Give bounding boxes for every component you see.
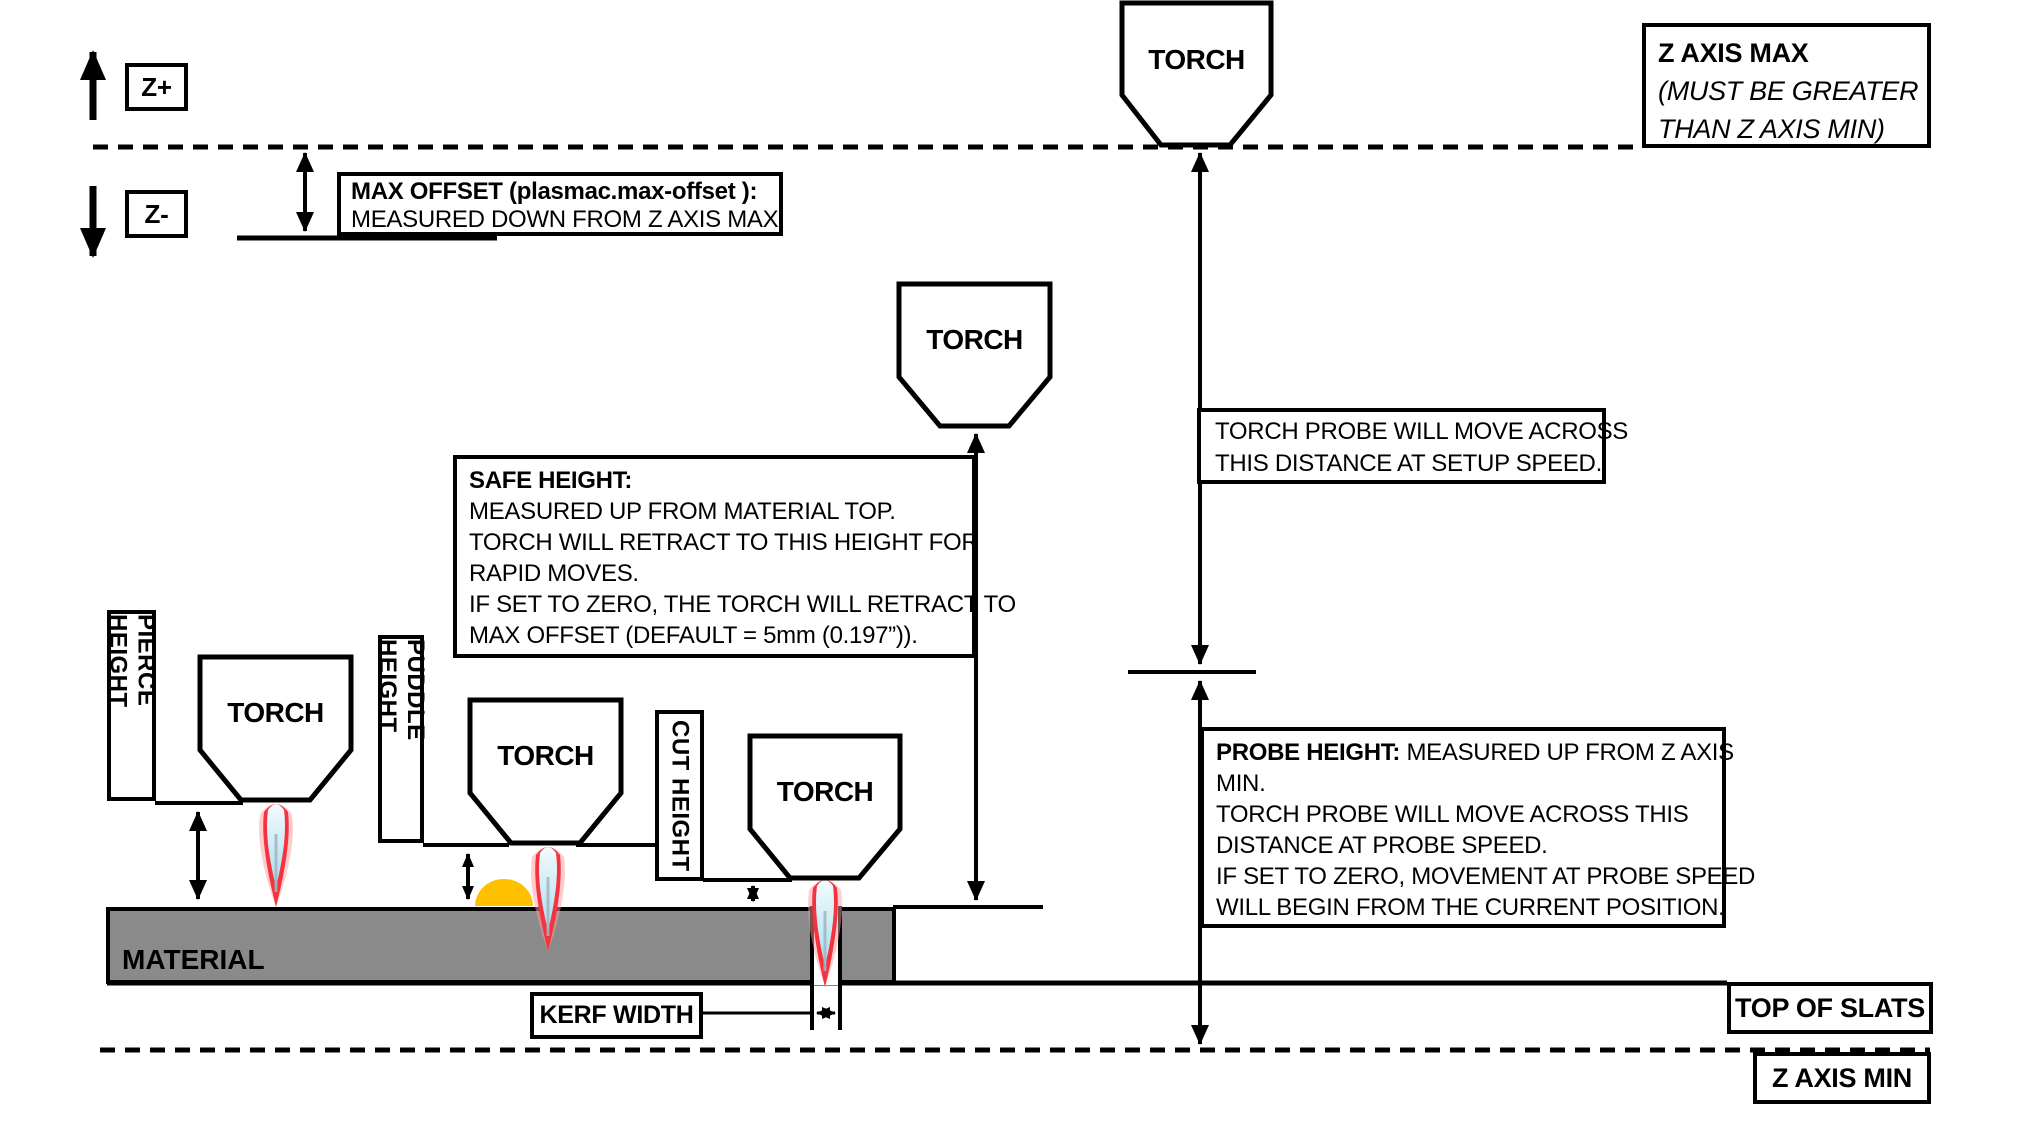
- probe-height-title: PROBE HEIGHT:: [1216, 739, 1400, 766]
- safe-height-line1: MEASURED UP FROM MATERIAL TOP.: [469, 496, 960, 527]
- safe-height-box: SAFE HEIGHT: MEASURED UP FROM MATERIAL T…: [453, 455, 976, 658]
- plasmac-height-diagram: TORCH TORCH TORCH TORCH TORCH Z+ Z- MAX …: [0, 0, 2038, 1145]
- z-axis-max-line3: THAN Z AXIS MIN): [1658, 110, 1915, 148]
- max-offset-title: MAX OFFSET (plasmac.max-offset ):: [351, 178, 769, 206]
- torch-probe-setup-line2: THIS DISTANCE AT SETUP SPEED.: [1215, 448, 1588, 480]
- safe-height-title: SAFE HEIGHT:: [469, 465, 960, 496]
- diagram-linework: [0, 0, 2038, 1145]
- material-label: MATERIAL: [122, 944, 265, 976]
- z-plus-box: Z+: [125, 63, 188, 111]
- torch-label-cut: TORCH: [750, 776, 900, 808]
- torch-label-safe: TORCH: [899, 324, 1050, 356]
- cut-height-label: CUT HEIGHT: [655, 710, 704, 881]
- probe-height-line5: WILL BEGIN FROM THE CURRENT POSITION.: [1216, 892, 1710, 923]
- torch-label-puddle: TORCH: [470, 740, 621, 772]
- safe-height-line5: MAX OFFSET (DEFAULT = 5mm (0.197”)).: [469, 620, 960, 651]
- puddle-shape: [475, 879, 533, 906]
- z-axis-max-line2: (MUST BE GREATER: [1658, 72, 1915, 110]
- torch-probe-setup-line1: TORCH PROBE WILL MOVE ACROSS: [1215, 416, 1588, 448]
- probe-height-title-line: PROBE HEIGHT: MEASURED UP FROM Z AXIS: [1216, 737, 1710, 768]
- probe-height-title-rest: MEASURED UP FROM Z AXIS: [1400, 739, 1734, 766]
- top-of-slats-box: TOP OF SLATS: [1727, 982, 1933, 1034]
- puddle-height-label: PUDDLE HEIGHT: [378, 635, 424, 843]
- pierce-flame: [259, 804, 293, 907]
- probe-height-line3: DISTANCE AT PROBE SPEED.: [1216, 830, 1710, 861]
- torch-probe-setup-box: TORCH PROBE WILL MOVE ACROSS THIS DISTAN…: [1197, 408, 1606, 484]
- z-minus-box: Z-: [125, 190, 188, 238]
- max-offset-line2: MEASURED DOWN FROM Z AXIS MAX: [351, 206, 769, 234]
- kerf-width-box: KERF WIDTH: [530, 992, 703, 1039]
- z-axis-min-box: Z AXIS MIN: [1753, 1052, 1931, 1104]
- z-axis-max-title: Z AXIS MAX: [1658, 34, 1915, 72]
- torch-label-pierce: TORCH: [200, 697, 351, 729]
- probe-height-line2: TORCH PROBE WILL MOVE ACROSS THIS: [1216, 799, 1710, 830]
- pierce-height-label: PIERCE HEIGHT: [107, 610, 156, 801]
- max-offset-box: MAX OFFSET (plasmac.max-offset ): MEASUR…: [337, 172, 783, 236]
- z-axis-max-box: Z AXIS MAX (MUST BE GREATER THAN Z AXIS …: [1642, 23, 1931, 148]
- safe-height-line4: IF SET TO ZERO, THE TORCH WILL RETRACT T…: [469, 589, 960, 620]
- probe-height-line4: IF SET TO ZERO, MOVEMENT AT PROBE SPEED: [1216, 861, 1710, 892]
- safe-height-line3: RAPID MOVES.: [469, 558, 960, 589]
- safe-height-line2: TORCH WILL RETRACT TO THIS HEIGHT FOR: [469, 527, 960, 558]
- probe-height-line1: MIN.: [1216, 768, 1710, 799]
- probe-height-box: PROBE HEIGHT: MEASURED UP FROM Z AXIS MI…: [1200, 727, 1726, 928]
- torch-label-top: TORCH: [1122, 44, 1271, 76]
